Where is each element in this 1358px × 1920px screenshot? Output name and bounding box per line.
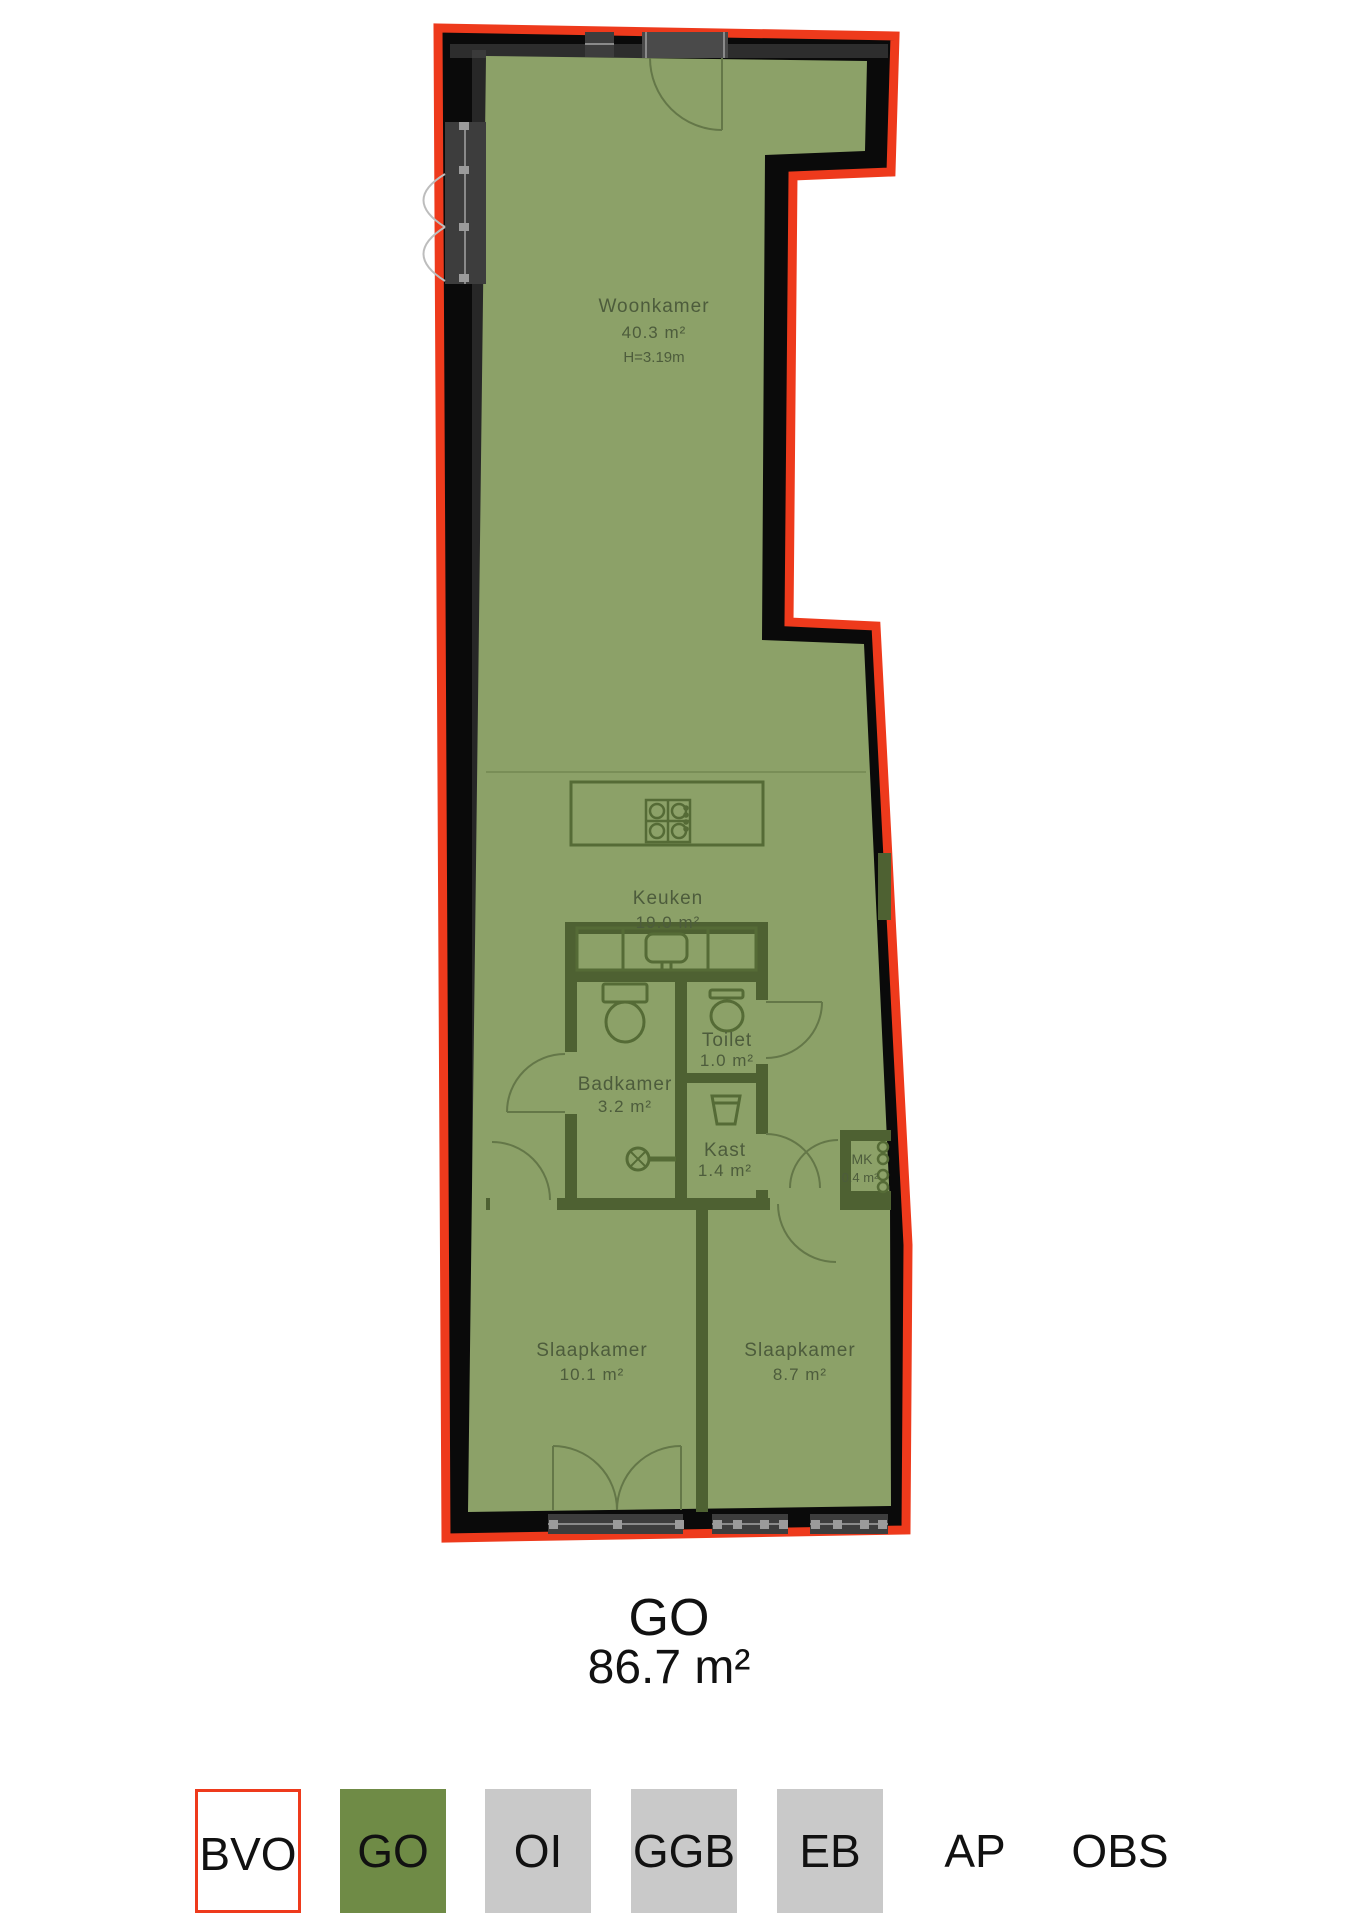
legend-item-obs: OBS xyxy=(1067,1789,1173,1913)
room-name: Slaapkamer xyxy=(536,1340,647,1361)
room-area: 0.4 m² xyxy=(842,1170,880,1185)
room-area: 19.0 m² xyxy=(636,913,701,932)
room-area: 3.2 m² xyxy=(598,1097,652,1116)
window-left xyxy=(445,122,486,284)
go-area xyxy=(468,56,891,1512)
room-name: Keuken xyxy=(633,888,703,909)
hob-icon xyxy=(646,800,690,842)
summary-area: 86.7 m² xyxy=(469,1640,869,1695)
window-bottom-middle xyxy=(712,1514,788,1534)
room-name: Slaapkamer xyxy=(744,1340,855,1361)
room-area: 10.1 m² xyxy=(560,1365,625,1384)
room-area: 40.3 m² xyxy=(622,323,687,342)
room-label-kast: Kast 1.4 m² xyxy=(698,1140,752,1180)
legend-item-ggb: GGB xyxy=(631,1789,737,1913)
window-bottom-right xyxy=(810,1514,888,1534)
room-ceiling-height: H=3.19m xyxy=(623,349,684,366)
room-area: 1.4 m² xyxy=(698,1161,752,1180)
legend-item-ap: AP xyxy=(922,1789,1028,1913)
summary-code: GO xyxy=(469,1588,869,1648)
legend-item-oi: OI xyxy=(485,1789,591,1913)
room-area: 1.0 m² xyxy=(700,1051,754,1070)
floorplan-page: Woonkamer 40.3 m² H=3.19m Keuken 19.0 m²… xyxy=(0,0,1358,1920)
room-name: Badkamer xyxy=(578,1074,673,1095)
room-name: Woonkamer xyxy=(598,296,709,317)
room-name: Toilet xyxy=(702,1030,752,1051)
legend-item-bvo: BVO xyxy=(195,1789,301,1913)
room-name: MK xyxy=(852,1151,874,1167)
entry-door-opening xyxy=(642,32,728,58)
window-top xyxy=(585,32,614,57)
room-area: 8.7 m² xyxy=(773,1365,827,1384)
legend-item-eb: EB xyxy=(777,1789,883,1913)
legend-item-go: GO xyxy=(340,1789,446,1913)
window-bottom-left xyxy=(548,1514,684,1534)
room-name: Kast xyxy=(704,1140,746,1161)
room-label-toilet: Toilet 1.0 m² xyxy=(700,1030,754,1070)
